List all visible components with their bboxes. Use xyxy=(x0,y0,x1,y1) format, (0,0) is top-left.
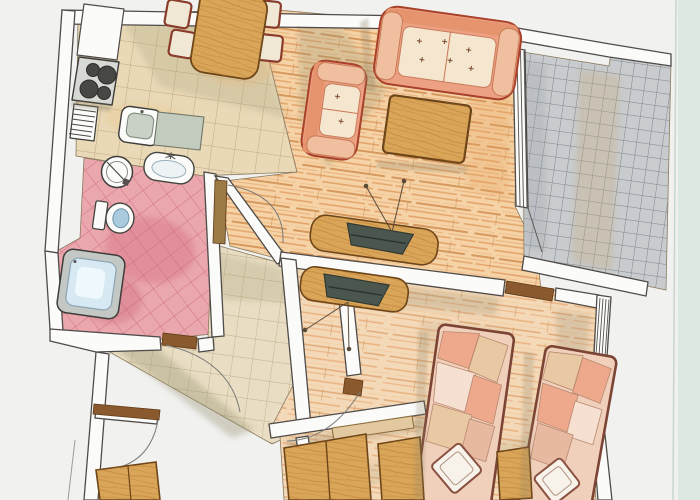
living-door-threshold xyxy=(213,180,227,244)
sofa-vertical xyxy=(300,59,369,162)
burner-icon xyxy=(98,87,111,100)
wall-bathroom-bottom-right xyxy=(198,337,214,352)
burner-icon xyxy=(98,66,116,84)
stove xyxy=(72,57,119,105)
scan-edge-strip xyxy=(678,0,700,500)
bedroom-door-threshold xyxy=(343,378,363,396)
shower-cabin xyxy=(56,248,126,320)
dining-table xyxy=(189,0,269,81)
dining-chair xyxy=(164,0,192,29)
floor-plan-drawing xyxy=(0,0,700,500)
scanned-floor-plan xyxy=(0,0,700,500)
burner-icon xyxy=(80,80,98,98)
coffee-table xyxy=(382,95,471,164)
worktop xyxy=(154,112,204,150)
washing-machine xyxy=(102,157,133,188)
kitchen-counter xyxy=(77,4,124,60)
